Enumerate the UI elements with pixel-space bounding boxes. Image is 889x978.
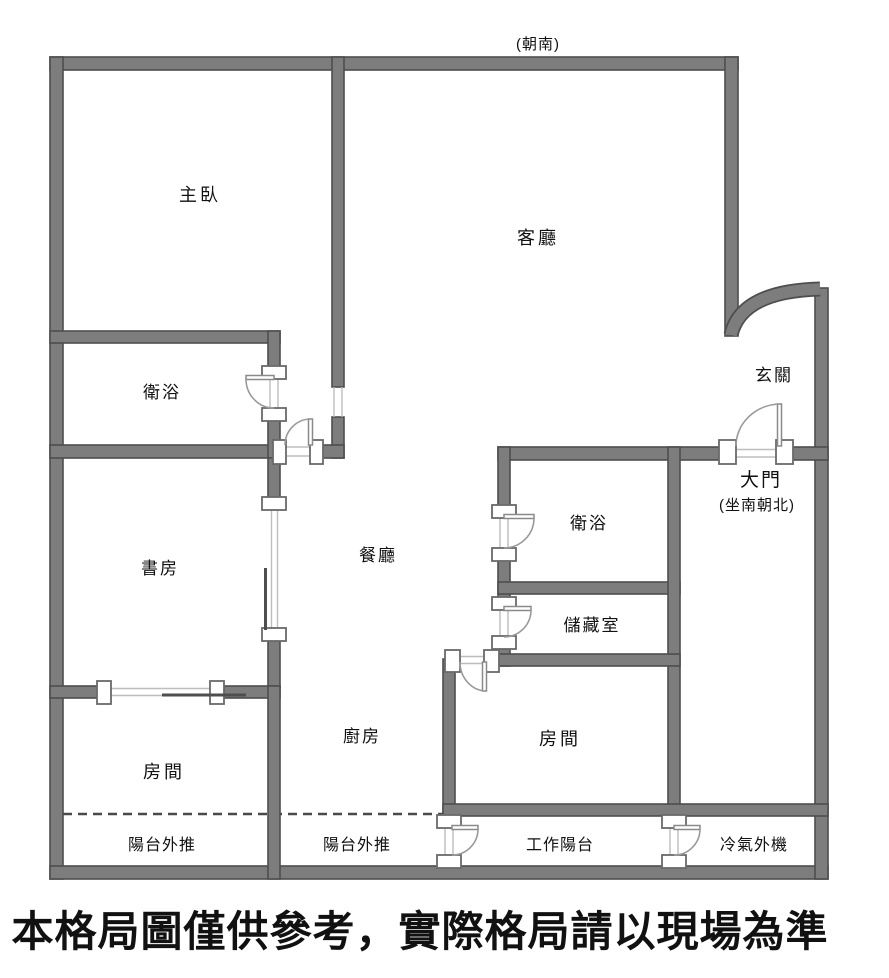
wall-segment — [668, 447, 680, 816]
orientation-label: (朝南) — [516, 36, 560, 53]
door-jamb — [262, 497, 286, 510]
wall-opening — [736, 450, 777, 458]
door-jamb — [719, 440, 736, 464]
wall-segment — [815, 288, 828, 879]
door-leaf — [309, 419, 313, 445]
door-swing-arc — [460, 662, 485, 691]
wall-segment — [50, 686, 98, 698]
floor-plan-page: (朝南) 主臥 客廳 衛浴 玄關 大門 (坐南朝北) 書房 餐廳 衛浴 儲藏室 … — [0, 0, 889, 978]
wall-opening — [285, 447, 311, 456]
door-jamb — [492, 548, 516, 561]
wall-segment — [498, 582, 680, 594]
wall-opening — [334, 387, 342, 417]
wall-segment — [498, 447, 724, 460]
room-label-master-bedroom: 主臥 — [179, 185, 221, 205]
wall-segment — [50, 57, 738, 70]
wall-segment — [725, 57, 738, 336]
door-leaf — [778, 404, 782, 446]
room-label-bedroom-right: 房間 — [539, 729, 581, 749]
door-swing-arc — [285, 419, 311, 445]
door-leaf — [674, 826, 700, 830]
door-leaf — [246, 376, 274, 380]
room-label-storage: 儲藏室 — [564, 616, 621, 635]
door-jamb — [273, 440, 286, 464]
door-jamb — [662, 855, 686, 868]
wall-segment — [498, 447, 510, 507]
wall-segment — [50, 445, 276, 458]
disclaimer-text: 本格局圖僅供參考，實際格局請以現場為準 — [11, 908, 828, 955]
door-leaf — [504, 607, 531, 611]
wall-segment — [268, 641, 280, 688]
door-jamb — [445, 650, 460, 672]
wall-segment — [443, 804, 828, 816]
floor-plan-drawing: (朝南) 主臥 客廳 衛浴 玄關 大門 (坐南朝北) 書房 餐廳 衛浴 儲藏室 … — [0, 0, 889, 978]
door-jamb — [262, 408, 286, 421]
wall-segment — [332, 57, 344, 387]
sliding-door-leaf — [264, 568, 267, 630]
room-label-master-bath: 衛浴 — [143, 383, 181, 402]
wall-segment — [268, 686, 280, 879]
door-swing-arc — [736, 404, 780, 446]
room-label-dining: 餐廳 — [359, 546, 397, 565]
door-leaf — [452, 826, 478, 830]
room-label-kitchen: 廚房 — [343, 726, 381, 746]
wall-segment — [792, 447, 828, 460]
room-label-study: 書房 — [141, 559, 179, 578]
door-jamb — [437, 855, 461, 868]
room-label-bedroom-left: 房間 — [143, 762, 185, 782]
door-swing-arc — [452, 829, 478, 855]
wall-segment — [50, 331, 280, 343]
main-door-label: 大門 — [740, 469, 782, 491]
wall-opening — [460, 657, 485, 664]
wall-segment — [443, 659, 455, 816]
wall-segment — [268, 331, 280, 367]
wall-opening — [272, 498, 278, 641]
door-leaf — [504, 515, 534, 519]
room-label-foyer: 玄關 — [755, 366, 793, 385]
window-jamb — [97, 681, 111, 704]
label-ac-outdoor-unit: 冷氣外機 — [720, 836, 788, 854]
main-door-orientation-note: (坐南朝北) — [719, 497, 795, 514]
label-balcony-pushout-left: 陽台外推 — [128, 836, 196, 854]
window-jamb — [210, 681, 224, 704]
wall-segment — [485, 654, 680, 666]
wall-segment — [50, 57, 63, 879]
sliding-door-leaf — [162, 694, 246, 697]
label-balcony-pushout-middle: 陽台外推 — [323, 836, 391, 854]
door-jamb — [492, 636, 516, 649]
door-leaf — [483, 662, 487, 691]
walls — [50, 57, 828, 879]
room-label-bathroom2: 衛浴 — [570, 514, 608, 533]
label-work-balcony: 工作陽台 — [526, 836, 594, 854]
room-label-living-room: 客廳 — [517, 228, 559, 248]
